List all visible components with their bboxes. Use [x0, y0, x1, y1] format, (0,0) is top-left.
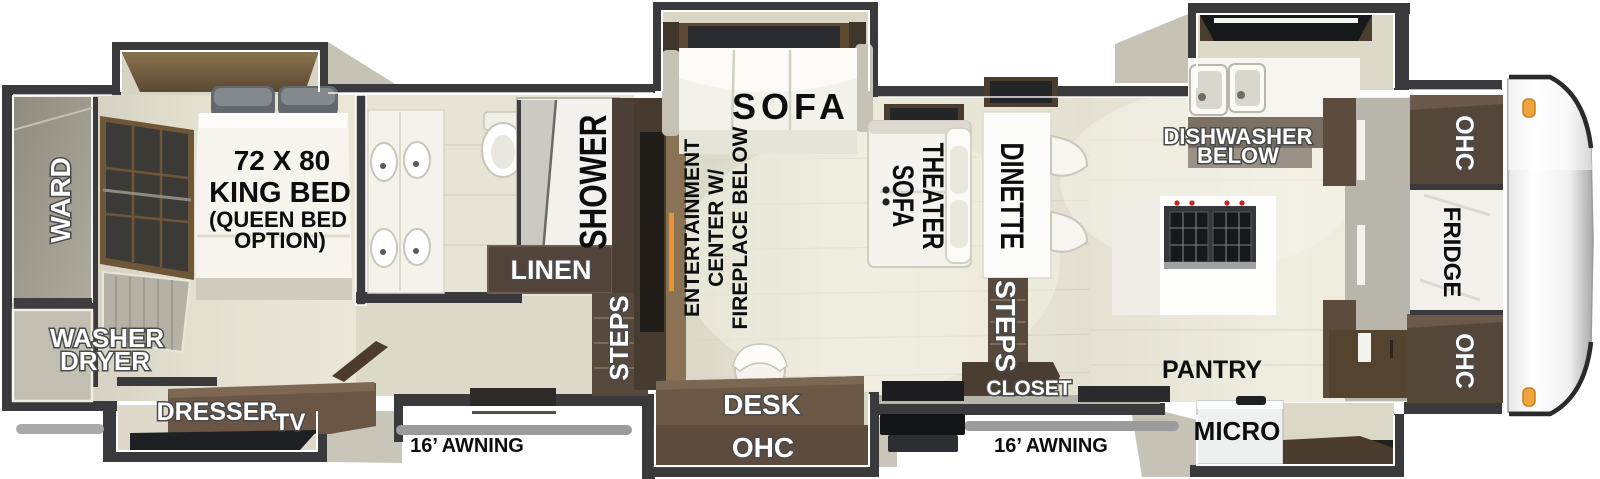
- svg-text:TV: TV: [275, 409, 306, 436]
- svg-text:16’ AWNING: 16’ AWNING: [410, 435, 524, 457]
- svg-text:FIREPLACE BELOW: FIREPLACE BELOW: [729, 126, 752, 329]
- svg-text:CENTER W/: CENTER W/: [705, 169, 728, 287]
- svg-text:BELOW: BELOW: [1197, 143, 1279, 168]
- svg-text:DRYER: DRYER: [60, 346, 150, 376]
- svg-text:KING BED: KING BED: [209, 177, 351, 209]
- svg-text:SHOWER: SHOWER: [573, 114, 615, 249]
- svg-text:DRESSER: DRESSER: [157, 398, 278, 426]
- svg-text:LINEN: LINEN: [511, 255, 592, 285]
- svg-text:WARD: WARD: [45, 157, 76, 243]
- svg-text:SOFA: SOFA: [886, 165, 919, 228]
- svg-text:OHC: OHC: [1450, 115, 1478, 171]
- svg-text:SOFA: SOFA: [732, 86, 850, 127]
- svg-text:CLOSET: CLOSET: [986, 377, 1071, 400]
- svg-text:FRIDGE: FRIDGE: [1438, 207, 1465, 298]
- svg-text:OHC: OHC: [1450, 333, 1478, 389]
- svg-text:72 X 80: 72 X 80: [234, 145, 331, 176]
- svg-text:MICRO: MICRO: [1194, 416, 1281, 446]
- svg-text:THEATER: THEATER: [916, 143, 949, 250]
- svg-text:PANTRY: PANTRY: [1162, 356, 1262, 384]
- svg-text:STEPS: STEPS: [604, 295, 634, 380]
- svg-text:STEPS: STEPS: [990, 280, 1021, 372]
- svg-text:16’ AWNING: 16’ AWNING: [994, 435, 1108, 457]
- svg-text:ENTERTAINMENT: ENTERTAINMENT: [681, 139, 704, 317]
- svg-text:OPTION): OPTION): [234, 228, 326, 253]
- svg-text:DESK: DESK: [723, 389, 801, 420]
- svg-text:DINETTE: DINETTE: [993, 143, 1029, 250]
- svg-text:OHC: OHC: [732, 432, 794, 463]
